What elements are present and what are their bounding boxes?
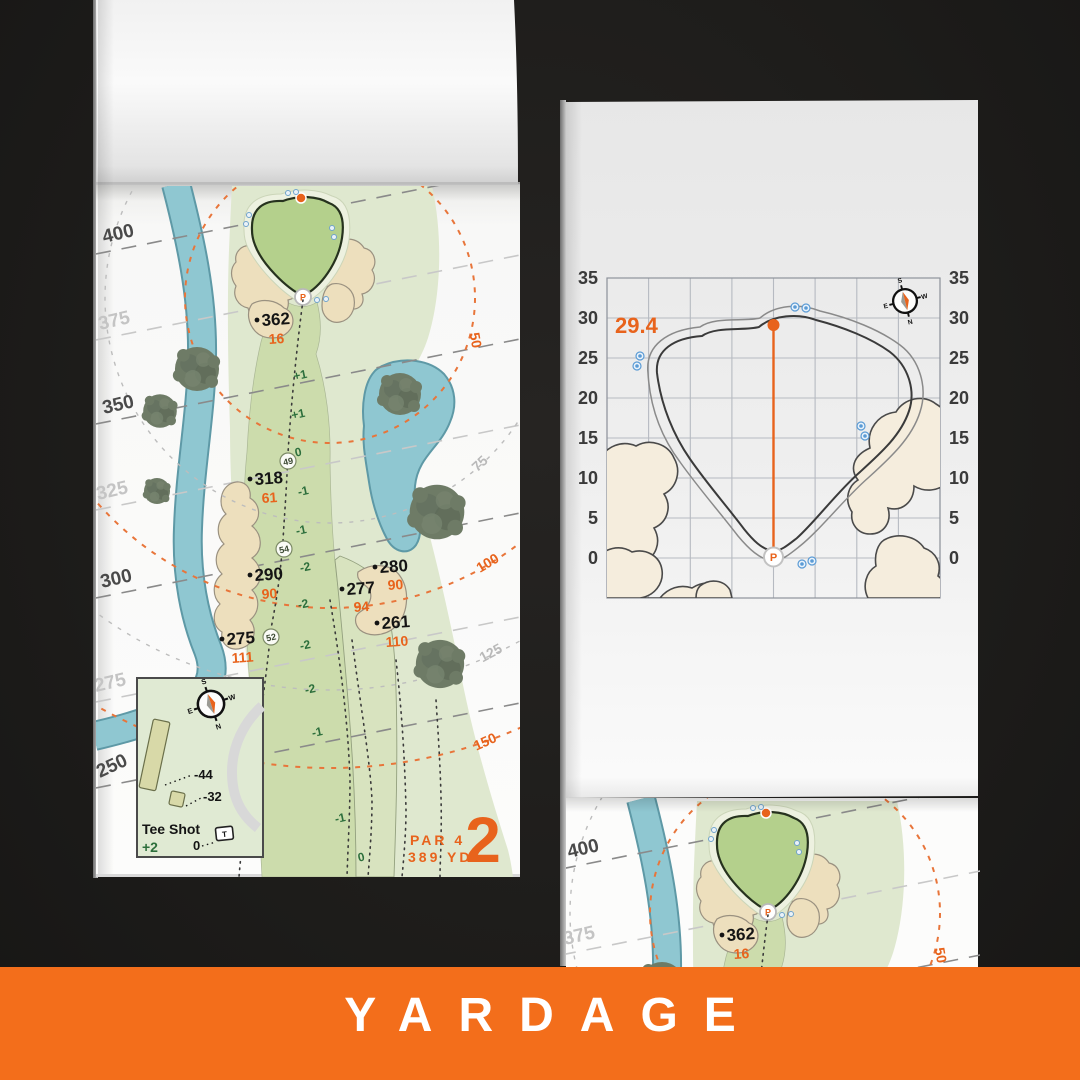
inset-title: Tee Shot xyxy=(142,821,200,837)
marker-main: 275 xyxy=(226,628,256,649)
axis-tick: 15 xyxy=(578,428,598,448)
marker-main: 290 xyxy=(254,564,284,585)
axis-tick: 5 xyxy=(588,508,598,528)
right-book-spine-edge xyxy=(560,100,566,966)
flipped-page[interactable] xyxy=(96,0,518,184)
marker-main: 362 xyxy=(261,309,291,330)
inset-slope: +2 xyxy=(142,839,158,855)
chart-pin-letter: P xyxy=(770,552,777,564)
axis-tick: 35 xyxy=(949,268,969,288)
axis-tick: 25 xyxy=(949,348,969,368)
axis-tick: 10 xyxy=(949,468,969,488)
product-photo: S W N E xyxy=(0,0,1080,1080)
tee-box-front xyxy=(169,791,186,808)
right-crease-shadow xyxy=(566,100,582,798)
width-value: 54 xyxy=(278,544,290,556)
inset-tee-distance: 0 xyxy=(193,838,200,853)
inset-offset-right: -32 xyxy=(203,789,222,804)
axis-tick: 35 xyxy=(578,268,598,288)
marker-sub: 61 xyxy=(261,489,278,506)
axis-tick: 30 xyxy=(949,308,969,328)
marker-sub: 90 xyxy=(261,585,278,602)
tee-shot-inset: -44 -32 Tee Shot +2 0 T xyxy=(137,669,263,857)
inset-offset-left: -44 xyxy=(194,767,214,782)
yardage-banner: YARDAGE xyxy=(0,967,1080,1080)
axis-tick: 15 xyxy=(949,428,969,448)
marker-sub: 16 xyxy=(268,330,285,347)
marker-sub: 110 xyxy=(385,632,409,650)
scene-svg: S W N E xyxy=(0,0,1080,1080)
axis-tick: 20 xyxy=(949,388,969,408)
axis-tick: 0 xyxy=(588,548,598,568)
right-fold-shadow xyxy=(566,798,978,812)
width-value: 52 xyxy=(265,632,277,644)
chart-pin-marker: P xyxy=(764,548,783,567)
arc-label: 50 xyxy=(467,331,485,349)
axis-tick: 0 xyxy=(949,548,959,568)
marker-sub: 90 xyxy=(387,576,404,593)
axis-tick: 10 xyxy=(578,468,598,488)
banner-title: YARDAGE xyxy=(344,988,762,1043)
marker-main: 277 xyxy=(346,578,376,599)
width-value: 49 xyxy=(282,456,294,468)
page-fold-line xyxy=(96,182,520,185)
axis-tick: 5 xyxy=(949,508,959,528)
par-label: PAR 4 xyxy=(410,832,465,848)
axis-tick: 25 xyxy=(578,348,598,368)
axis-tick: 30 xyxy=(578,308,598,328)
depth-top-dot xyxy=(768,319,780,331)
marker-main: 261 xyxy=(381,612,411,633)
marker-sub: 111 xyxy=(231,648,254,665)
green-depth-value: 29.4 xyxy=(615,313,659,338)
marker-sub: 94 xyxy=(353,598,370,615)
marker-main: 318 xyxy=(254,468,284,489)
marker-main: 280 xyxy=(379,556,409,577)
yardage-total-label: 389 YD xyxy=(408,849,472,865)
axis-tick: 20 xyxy=(578,388,598,408)
pin-marker: P xyxy=(295,289,311,305)
tee-marker-icon: T xyxy=(215,826,233,841)
hole-number: 2 xyxy=(465,804,501,876)
